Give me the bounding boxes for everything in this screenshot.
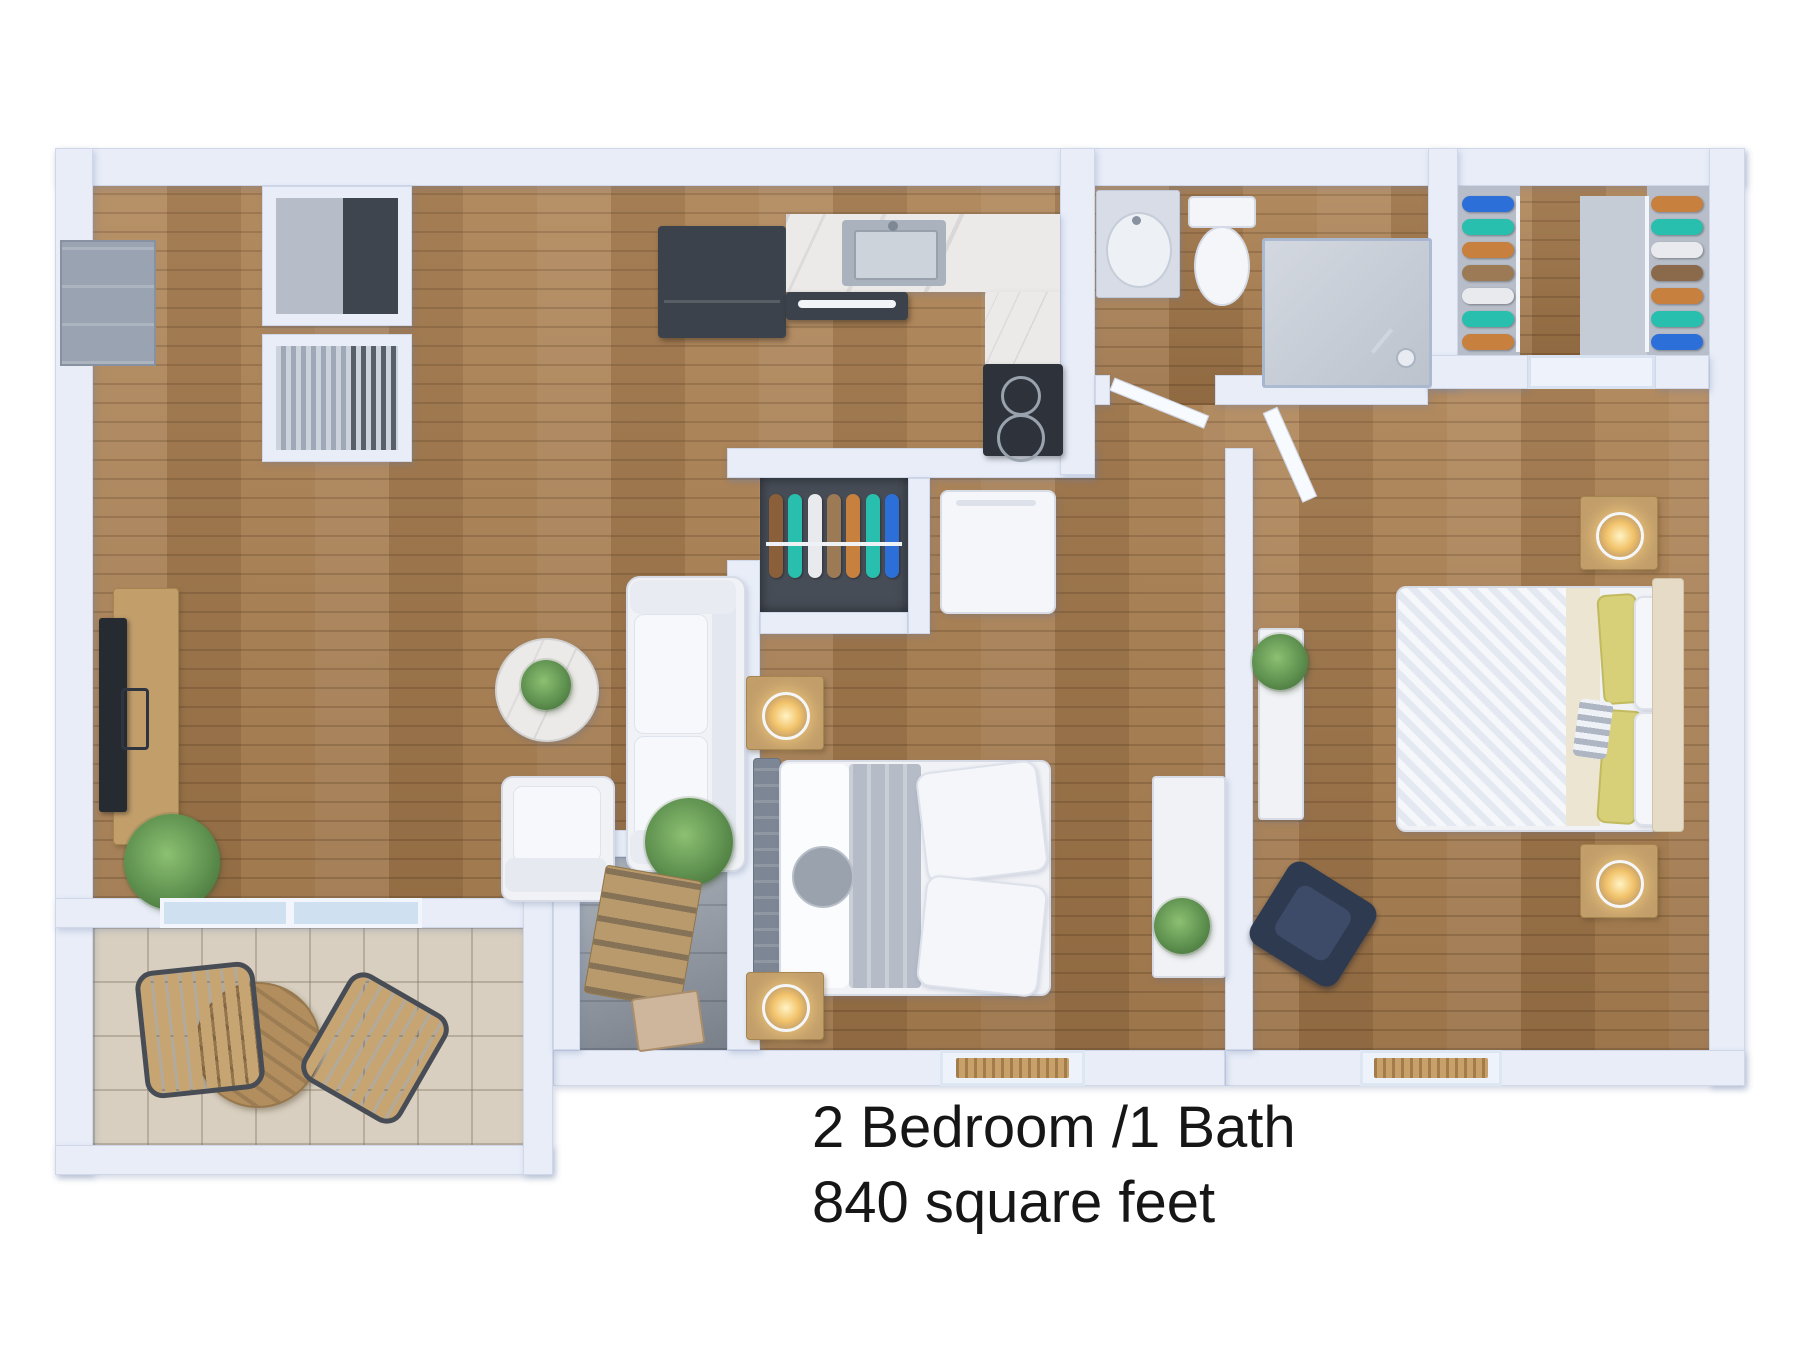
armchair-seat-cushion	[513, 786, 601, 862]
table-lamp	[762, 984, 810, 1032]
shower-head	[1396, 348, 1416, 368]
armchair-backrest	[505, 858, 607, 892]
refrigerator-door-seam	[664, 300, 780, 303]
clothing-item	[1651, 265, 1703, 281]
coffee-table-plant	[521, 660, 571, 710]
table-lamp	[1596, 860, 1644, 908]
closet-rod	[766, 542, 902, 546]
clothing-item	[1651, 219, 1703, 235]
hanging-clothes-rack	[1460, 192, 1516, 354]
clothing-item	[1462, 288, 1514, 304]
bedroom2-headboard	[1652, 578, 1684, 832]
wall-bottom-bedroom1	[553, 1050, 1225, 1086]
nook-storage-box	[631, 990, 706, 1053]
wall-top	[55, 148, 1745, 186]
clothing-item	[1651, 288, 1703, 304]
tv-mount-bracket	[121, 688, 149, 750]
clothing-item	[788, 494, 802, 578]
bedroom1-plant	[1154, 898, 1210, 954]
hanging-clothes-rack	[1649, 192, 1705, 354]
wall-closet-bottom-a	[1428, 355, 1528, 389]
bedroom1-window-blind	[956, 1058, 1069, 1078]
clothing-item	[1462, 311, 1514, 327]
clothing-item	[769, 494, 783, 578]
clothing-item	[827, 494, 841, 578]
clothing-item	[1651, 334, 1703, 350]
water-heater-vent	[956, 500, 1036, 506]
closet-rod	[1516, 196, 1520, 352]
sofa-cushion	[634, 614, 708, 734]
kitchen-sink-basin	[854, 230, 938, 280]
wall-bedroom1-bedroom2	[1225, 448, 1253, 1050]
refrigerator	[658, 226, 786, 338]
caption-line-1: 2 Bedroom /1 Bath	[812, 1090, 1296, 1165]
bedroom1-headboard	[753, 758, 781, 996]
wall-bathroom-closet	[1428, 148, 1458, 389]
patio-chair	[134, 960, 267, 1100]
bathroom-faucet	[1132, 216, 1141, 225]
kitchen-faucet	[888, 221, 898, 231]
clothing-item	[1462, 196, 1514, 212]
sofa-armrest	[630, 580, 736, 614]
bedroom2-duvet	[1398, 588, 1566, 826]
bedroom1-round-cushion	[792, 846, 854, 908]
wall-bathroom-bottom-a	[1095, 375, 1110, 405]
clothing-item	[1462, 334, 1514, 350]
wall-right	[1709, 148, 1745, 1086]
clothing-item	[1651, 196, 1703, 212]
caption: 2 Bedroom /1 Bath 840 square feet	[812, 1090, 1296, 1241]
wall-bedroom1-closet	[760, 612, 908, 634]
water-heater	[940, 490, 1056, 614]
entry-closet-b-louver-doors	[276, 346, 398, 450]
oven-handle	[798, 300, 896, 308]
toilet-tank	[1188, 196, 1256, 228]
clothing-item	[1462, 219, 1514, 235]
wall-balcony-right	[523, 898, 553, 1175]
clothing-item	[1651, 242, 1703, 258]
stove-burner	[1001, 376, 1041, 416]
wall-closet-bottom-b	[1655, 355, 1709, 389]
bedroom2-window-blind	[1374, 1058, 1488, 1078]
clothing-item	[846, 494, 860, 578]
closet-door-threshold	[1528, 355, 1655, 389]
stove-burner	[997, 414, 1045, 462]
bedroom1-grey-blanket	[849, 764, 921, 988]
clothing-item	[885, 494, 899, 578]
toilet-bowl	[1194, 226, 1250, 306]
clothing-item	[1651, 311, 1703, 327]
clothing-item	[1462, 242, 1514, 258]
bedroom1-pillow	[915, 759, 1050, 885]
table-lamp	[762, 692, 810, 740]
bedroom2-plant	[1252, 634, 1308, 690]
hanging-clothes-rack	[766, 492, 902, 580]
entry-closet-a-interior	[276, 198, 398, 314]
clothing-item	[866, 494, 880, 578]
walkin-closet-back	[1580, 196, 1647, 355]
clothing-item	[808, 494, 822, 578]
table-lamp	[1596, 512, 1644, 560]
living-room-plant	[124, 814, 220, 910]
entry-door	[60, 240, 156, 366]
caption-line-2: 840 square feet	[812, 1165, 1296, 1240]
bedroom1-pillow	[915, 874, 1048, 998]
clothing-item	[1462, 265, 1514, 281]
wall-laundry-divider	[908, 478, 930, 634]
wall-kitchen-bathroom	[1060, 148, 1095, 475]
sliding-door-mullion	[286, 898, 294, 928]
kitchen-counter-return	[985, 292, 1060, 366]
wall-balcony-bottom	[55, 1145, 553, 1175]
floorplan-image: 2 Bedroom /1 Bath 840 square feet	[0, 0, 1800, 1350]
